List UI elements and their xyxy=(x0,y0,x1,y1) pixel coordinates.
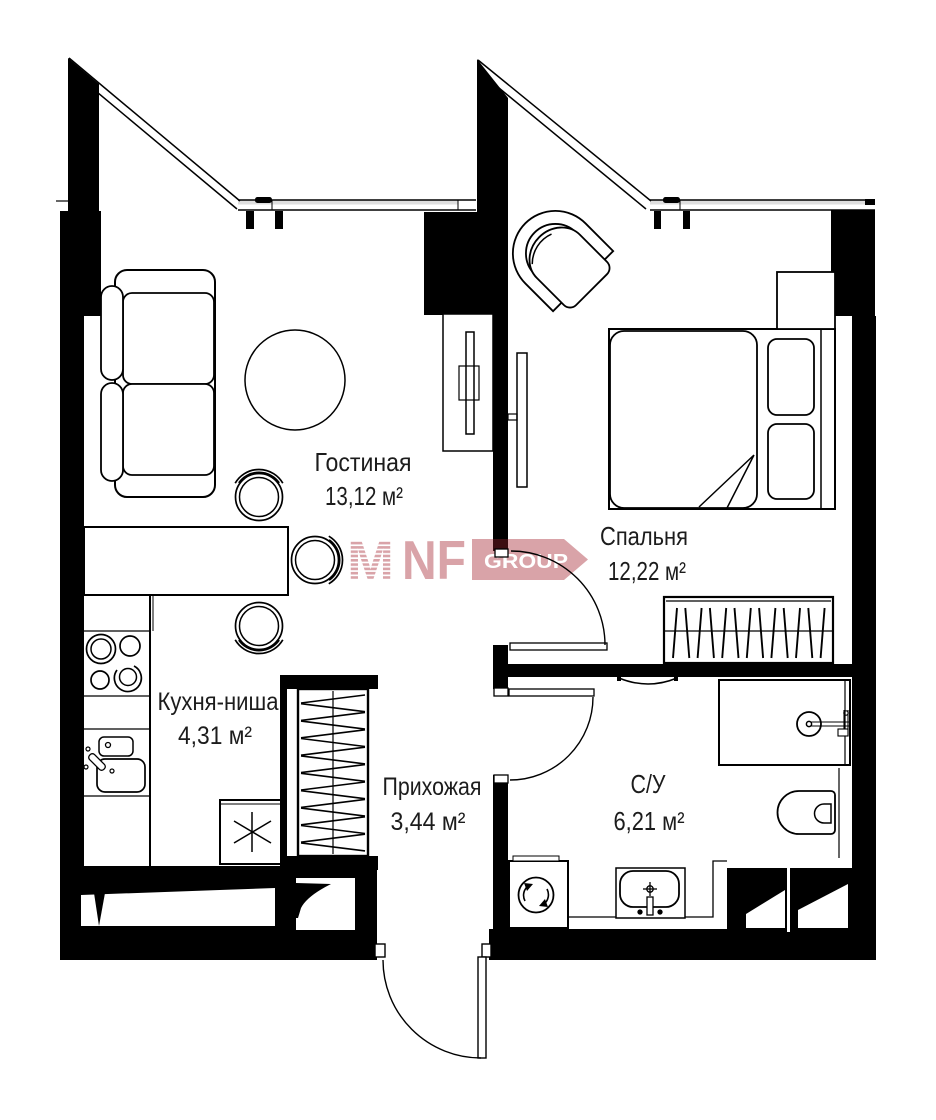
svg-text:3,44 м²: 3,44 м² xyxy=(391,808,466,836)
svg-text:M: M xyxy=(347,529,394,591)
svg-text:Кухня-ниша: Кухня-ниша xyxy=(158,688,279,716)
svg-text:4,31 м²: 4,31 м² xyxy=(178,722,252,750)
svg-text:С/У: С/У xyxy=(631,769,666,799)
svg-text:Прихожая: Прихожая xyxy=(383,773,482,801)
svg-text:NF: NF xyxy=(402,529,466,591)
svg-text:13,12 м²: 13,12 м² xyxy=(325,481,403,511)
svg-text:Гостиная: Гостиная xyxy=(315,447,412,477)
svg-text:6,21 м²: 6,21 м² xyxy=(614,806,685,836)
svg-text:Спальня: Спальня xyxy=(600,521,688,551)
svg-text:12,22 м²: 12,22 м² xyxy=(608,556,686,586)
